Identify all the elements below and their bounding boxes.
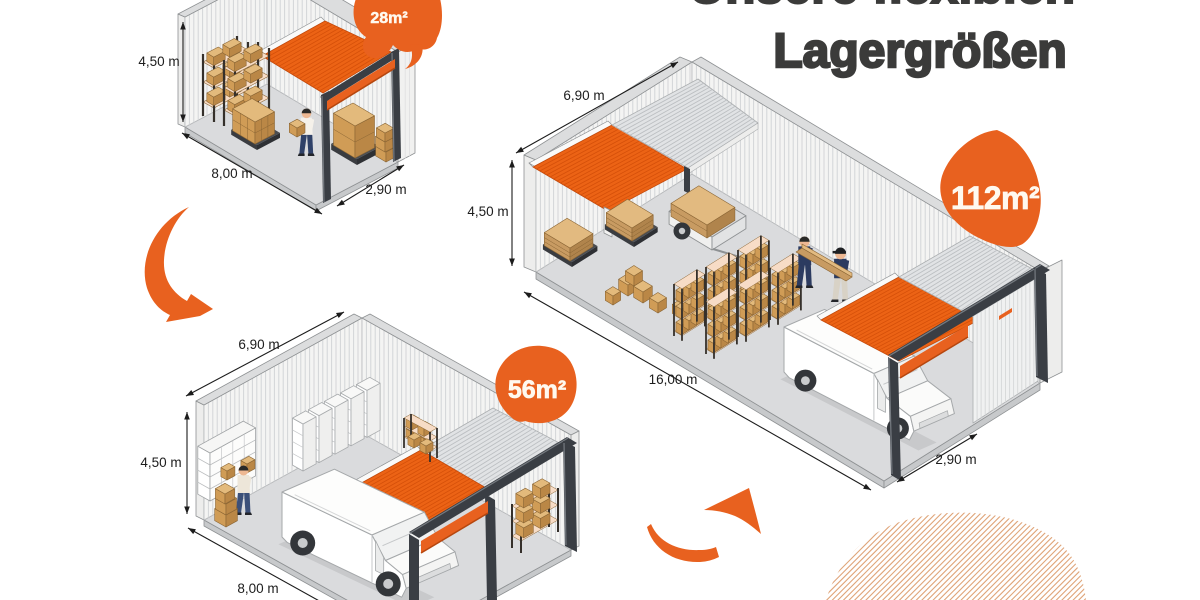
svg-text:8,00 m: 8,00 m [237, 581, 278, 596]
svg-text:56m²: 56m² [508, 376, 566, 404]
svg-text:112m²: 112m² [951, 180, 1039, 216]
svg-text:8,00 m: 8,00 m [211, 166, 252, 181]
svg-text:4,50 m: 4,50 m [138, 54, 179, 69]
svg-text:16,00 m: 16,00 m [649, 372, 698, 387]
svg-text:6,90 m: 6,90 m [563, 88, 604, 103]
svg-text:4,50 m: 4,50 m [140, 455, 181, 470]
svg-text:4,50 m: 4,50 m [467, 204, 508, 219]
svg-text:Lagergrößen: Lagergrößen [773, 25, 1066, 78]
svg-text:2,90 m: 2,90 m [365, 182, 406, 197]
svg-text:Unsere flexiblen: Unsere flexiblen [689, 0, 1075, 14]
svg-text:6,90 m: 6,90 m [238, 337, 279, 352]
svg-text:2,90 m: 2,90 m [935, 452, 976, 467]
svg-text:28m²: 28m² [370, 10, 407, 27]
